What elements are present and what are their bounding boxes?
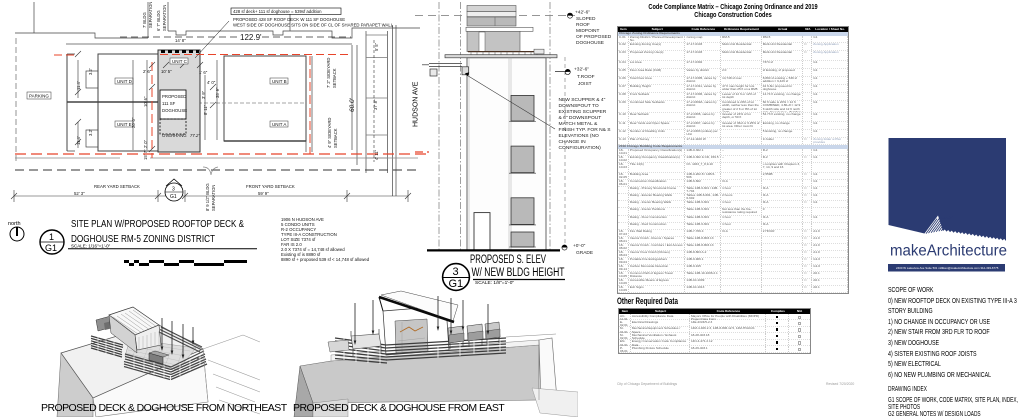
svg-text:SLOPED: SLOPED: [576, 16, 596, 22]
svg-text:5' 5": 5' 5": [374, 42, 379, 51]
svg-text:52' 3": 52' 3": [74, 191, 85, 196]
svg-text:2400 W Lakeview Ave Suite 501: 2400 W Lakeview Ave Suite 501 milliken@m…: [896, 266, 999, 270]
svg-text:428 sf deck+ 111 sf doghouse =: 428 sf deck+ 111 sf doghouse = 539sf add…: [233, 9, 322, 14]
svg-text:REAR YARD SETBACK: REAR YARD SETBACK: [94, 184, 140, 189]
svg-text:north: north: [8, 221, 21, 227]
svg-text:PROPOSED S. ELEV: PROPOSED S. ELEV: [470, 254, 546, 266]
svg-text:8' 11": 8' 11": [203, 104, 208, 115]
svg-text:4' 0": 4' 0": [207, 80, 216, 85]
svg-text:GRADE: GRADE: [576, 250, 593, 256]
svg-text:+42'-6": +42'-6": [575, 10, 590, 16]
svg-text:20' 0": 20' 0": [131, 117, 136, 128]
svg-text:G1: G1: [449, 278, 464, 290]
svg-text:SETBACK: SETBACK: [333, 128, 338, 148]
svg-text:60.0': 60.0': [349, 97, 356, 112]
svg-text:NEW SCUPPER & 4": NEW SCUPPER & 4": [559, 97, 606, 103]
svg-text:OVERHANG: OVERHANG: [162, 133, 187, 138]
svg-text:PROPOSED 428 SF ROOF DECK W 11: PROPOSED 428 SF ROOF DECK W 111 SF DOGHO…: [233, 17, 345, 22]
svg-text:11.4': 11.4': [76, 81, 81, 90]
svg-text:3.2': 3.2': [88, 129, 93, 136]
svg-text:7' 2" SIDEYARD: 7' 2" SIDEYARD: [326, 58, 331, 88]
svg-text:3' 9": 3' 9": [201, 90, 206, 99]
svg-text:4' 11": 4' 11": [374, 149, 379, 160]
svg-text:1' 6": 1' 6": [199, 70, 208, 75]
svg-text:SEPARATION: SEPARATION: [162, 5, 167, 31]
svg-text:G1: G1: [45, 243, 57, 253]
svg-text:SEPARATION: SEPARATION: [148, 2, 153, 28]
svg-text:37' 8": 37' 8": [373, 99, 378, 110]
svg-text:DOGHOUSE: DOGHOUSE: [162, 108, 187, 113]
svg-text:EXISTING SCUPPER: EXISTING SCUPPER: [559, 109, 607, 115]
svg-text:UNIT A: UNIT A: [272, 122, 286, 127]
svg-text:77.2': 77.2': [190, 133, 199, 138]
svg-text:UNIT B: UNIT B: [272, 79, 287, 84]
svg-text:35' 9": 35' 9": [215, 87, 220, 98]
svg-text:UNIT C: UNIT C: [172, 59, 188, 64]
svg-text:OF PROPOSED: OF PROPOSED: [576, 34, 612, 40]
svg-text:1: 1: [49, 232, 54, 242]
svg-text:SITE PLAN W/PROPOSED ROOFTOP D: SITE PLAN W/PROPOSED ROOFTOP DECK &: [71, 219, 244, 230]
svg-text:122.9': 122.9': [240, 33, 262, 42]
svg-text:SETBACK: SETBACK: [332, 68, 337, 88]
svg-text:8890 sf + proposed 539 sf < 1: 8890 sf + proposed 539 sf < 14,748 sf al…: [281, 257, 370, 262]
svg-text:CHANGE IN: CHANGE IN: [559, 139, 587, 145]
svg-text:makeArchitecture: makeArchitecture: [890, 243, 1007, 260]
svg-text:11.4': 11.4': [76, 136, 81, 145]
svg-text:MIDPOINT: MIDPOINT: [576, 28, 600, 34]
svg-text:DOWNSPOUT TO: DOWNSPOUT TO: [559, 103, 599, 109]
svg-text:G1: G1: [170, 194, 177, 200]
svg-text:7' BLDG: 7' BLDG: [142, 12, 147, 28]
svg-text:UNIT E: UNIT E: [117, 122, 132, 127]
svg-text:UNIT D: UNIT D: [117, 79, 133, 84]
svg-text:2' 6": 2' 6": [143, 69, 152, 74]
svg-text:ROOF: ROOF: [576, 22, 590, 28]
svg-text:+32'-6": +32'-6": [574, 67, 589, 73]
svg-text:3: 3: [172, 187, 175, 193]
svg-text:59' 9": 59' 9": [258, 191, 269, 196]
svg-text:10' 6": 10' 6": [143, 96, 148, 107]
svg-text:FINISH TYP. FOR N& S: FINISH TYP. FOR N& S: [559, 127, 612, 133]
svg-text:3.2': 3.2': [88, 68, 93, 75]
svg-text:2' 0": 2' 0": [143, 139, 148, 148]
svg-text:6' 7" BLDG: 6' 7" BLDG: [156, 10, 161, 31]
svg-text:8' 9 1/2" BLDG: 8' 9 1/2" BLDG: [205, 183, 210, 211]
svg-text:SEPARATION: SEPARATION: [211, 185, 216, 211]
svg-text:FRONT YARD SETBACK: FRONT YARD SETBACK: [246, 184, 295, 189]
svg-text:DOGHOUSE: DOGHOUSE: [576, 40, 604, 46]
svg-text:PARKING: PARKING: [29, 94, 49, 99]
svg-text:+0'-0": +0'-0": [573, 243, 586, 249]
svg-text:111 SF: 111 SF: [162, 101, 176, 106]
svg-text:15' 7": 15' 7": [143, 149, 148, 160]
svg-text:JOIST: JOIST: [578, 81, 592, 87]
svg-text:T.ROOF: T.ROOF: [577, 74, 595, 80]
svg-text:ELEVATIONS (NO: ELEVATIONS (NO: [559, 133, 600, 139]
svg-text:10' 5": 10' 5": [161, 69, 172, 74]
svg-text:SCALE: 1/16"=1'-0": SCALE: 1/16"=1'-0": [71, 244, 111, 249]
svg-text:MATCH METAL &: MATCH METAL &: [559, 121, 599, 127]
svg-text:WEST SIDE OF DOGHOUSE SITS ON: WEST SIDE OF DOGHOUSE SITS ON SIDE OF CL…: [233, 23, 394, 28]
svg-text:& 6" DOWNSPOUT: & 6" DOWNSPOUT: [559, 115, 602, 121]
svg-text:3: 3: [453, 266, 459, 278]
svg-text:W/ NEW BLDG HEIGHT: W/ NEW BLDG HEIGHT: [472, 267, 565, 279]
svg-text:4' 9" SIDEYARD: 4' 9" SIDEYARD: [327, 118, 332, 148]
svg-text:14' 8": 14' 8": [175, 38, 186, 43]
svg-text:PROPOSED: PROPOSED: [162, 94, 186, 99]
svg-text:SCALE: 1/8"=1'-0": SCALE: 1/8"=1'-0": [475, 280, 514, 286]
svg-text:CONFIGURATION): CONFIGURATION): [559, 145, 602, 151]
